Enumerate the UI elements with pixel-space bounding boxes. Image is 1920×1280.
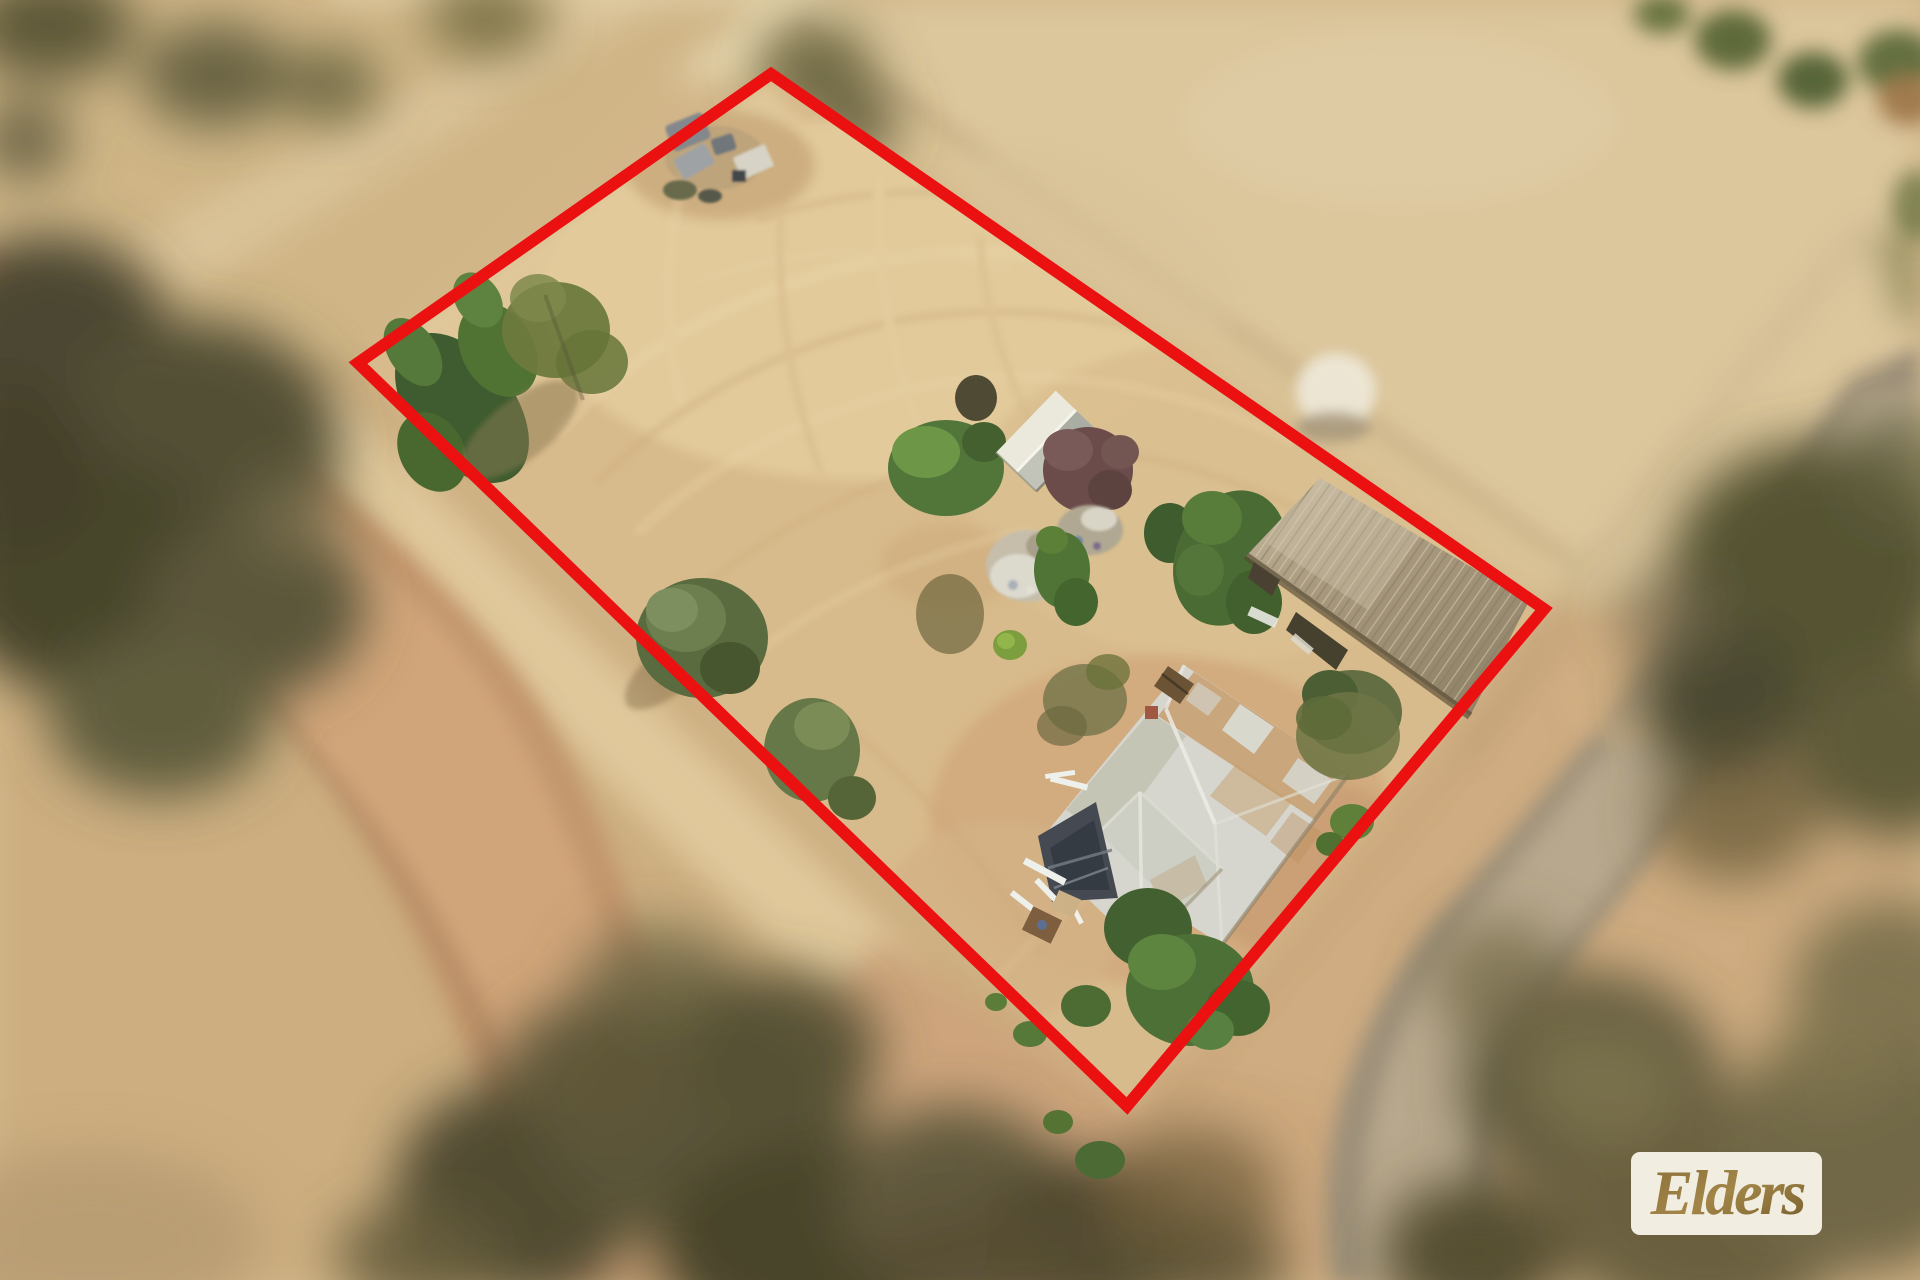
svg-text:Elders: Elders bbox=[1650, 1157, 1805, 1228]
